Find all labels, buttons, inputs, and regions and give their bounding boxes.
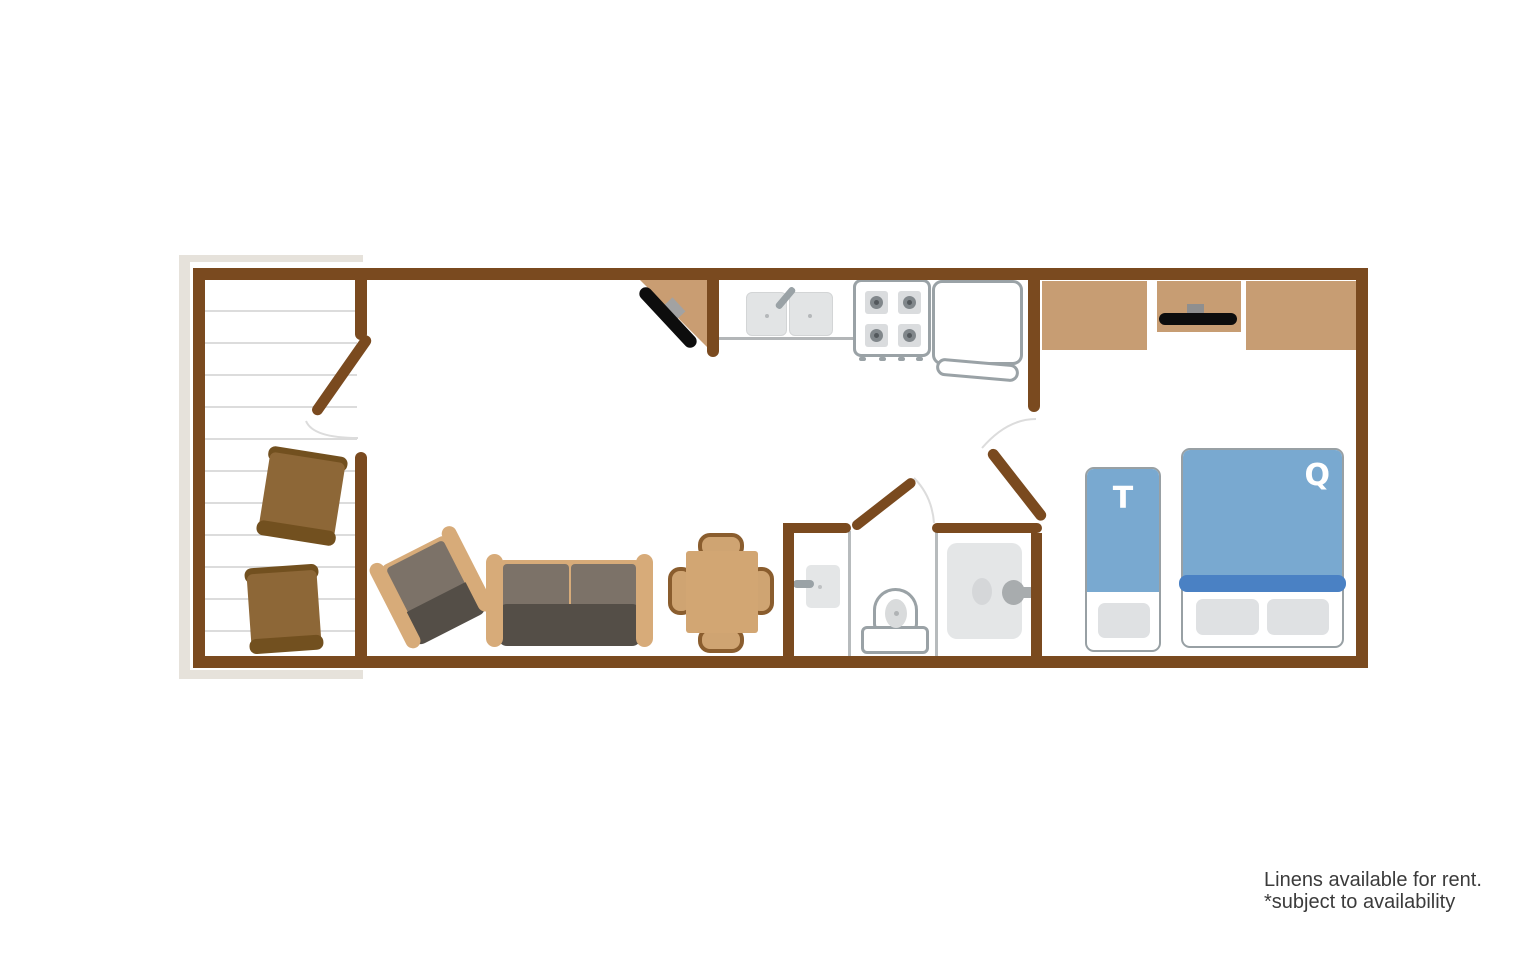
dresser-right: [1246, 281, 1356, 350]
sofa-arm-left: [486, 554, 503, 647]
dresser-left: [1042, 281, 1147, 350]
wall-left: [193, 268, 205, 668]
refrigerator: [932, 280, 1023, 365]
bedroom-door: [986, 447, 1049, 523]
twin-bed: T: [1085, 467, 1161, 652]
deck-chair-2: [246, 564, 322, 655]
wall-bathroom-right: [1031, 533, 1042, 656]
queen-bed-label: Q: [1304, 458, 1330, 493]
stove-knob: [859, 357, 866, 361]
stove-burner: [865, 324, 888, 347]
wall-deck-divider-upper: [355, 278, 367, 340]
bathroom-partition: [935, 531, 938, 656]
toilet-drain: [894, 611, 899, 616]
stove-knob: [879, 357, 886, 361]
stove: [853, 279, 931, 357]
wall-bottom: [193, 656, 1368, 668]
wall-top: [193, 268, 1368, 280]
queen-bed-pillow: [1196, 599, 1259, 635]
armchair: [369, 524, 495, 653]
dining-table: [686, 551, 758, 633]
sofa-arm-right: [636, 554, 653, 647]
wall-kitchen-left: [707, 280, 719, 357]
toilet-base: [861, 626, 929, 654]
linens-note: Linens available for rent. *subject to a…: [1264, 869, 1524, 913]
door-swing-arc: [914, 478, 934, 523]
wall-bathroom-sink-top: [783, 523, 851, 533]
bathroom-sink-drain: [818, 585, 822, 589]
sofa: [486, 552, 653, 649]
wall-kitchen-bedroom-divider: [1028, 280, 1040, 412]
kitchen-sink-basin-right: [789, 292, 833, 336]
wall-tv: [1159, 313, 1237, 325]
floorplan-canvas: T Q Linens available: [0, 0, 1540, 963]
bathroom-sink-handle: [793, 580, 814, 588]
queen-bed-pillow: [1267, 599, 1329, 635]
stove-knob: [916, 357, 923, 361]
bathroom-partition: [848, 531, 851, 656]
door-swing-arc: [982, 419, 1036, 448]
deck-chair-1: [257, 446, 346, 547]
toilet-room-door: [850, 476, 918, 532]
linens-note-line1: Linens available for rent.: [1264, 869, 1524, 891]
sofa-seat-cushion: [498, 604, 641, 646]
shower-knob: [1002, 580, 1025, 605]
wall-deck-divider-lower: [355, 452, 367, 656]
stove-burner: [898, 291, 921, 314]
twin-bed-pillow: [1098, 603, 1150, 638]
stove-burner: [898, 324, 921, 347]
wall-bathroom-left: [783, 525, 794, 656]
queen-bed-blanket-band: [1179, 575, 1346, 592]
queen-bed: Q: [1181, 448, 1344, 648]
linens-note-line2: *subject to availability: [1264, 891, 1524, 913]
kitchen-counter-edge: [719, 337, 853, 340]
twin-bed-label: T: [1087, 481, 1159, 516]
wall-right: [1356, 268, 1368, 668]
shower-drain: [972, 578, 992, 605]
stove-burner: [865, 291, 888, 314]
stove-knob: [898, 357, 905, 361]
wall-bathroom-shower-top: [932, 523, 1042, 533]
